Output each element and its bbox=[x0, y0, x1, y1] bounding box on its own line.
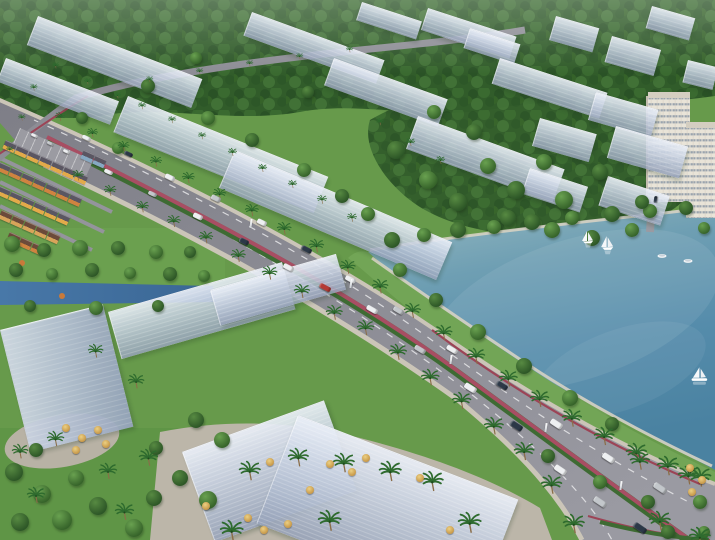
aerial-masterplan-rendering bbox=[0, 0, 715, 540]
flower-shrub bbox=[59, 293, 65, 299]
flower-shrub bbox=[19, 260, 25, 266]
atmospheric-haze bbox=[0, 0, 715, 74]
terrain-base bbox=[0, 0, 715, 540]
